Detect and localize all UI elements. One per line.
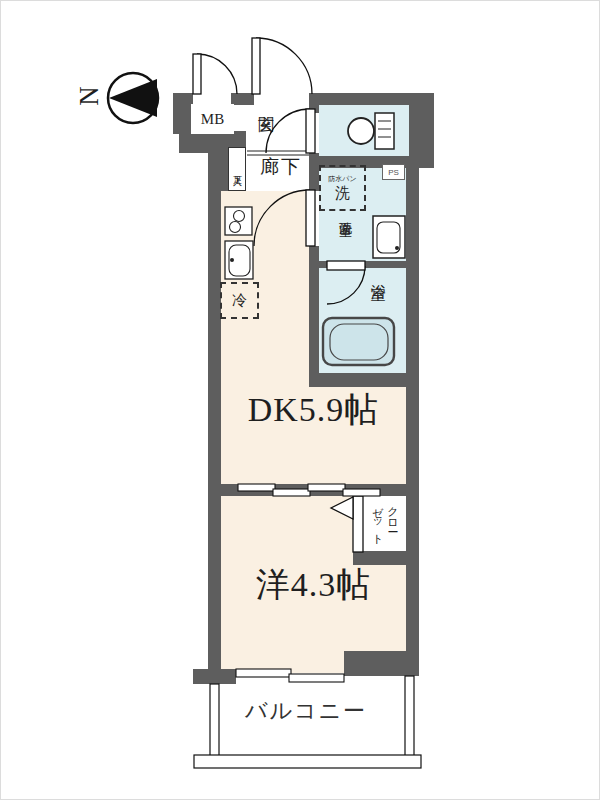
closet-label-right: クロー [385, 499, 400, 527]
wall-segment [344, 651, 418, 676]
wall-segment [409, 93, 434, 165]
western-room-text: 洋4.3帖 [256, 562, 372, 608]
bathroom-floor [319, 268, 406, 373]
north-letter: N [74, 86, 105, 106]
wall-segment [208, 151, 228, 191]
compass-icon [108, 73, 158, 123]
entrance-floor [246, 105, 309, 153]
wall-segment-room-divider [221, 484, 406, 496]
wall-segment [309, 246, 319, 387]
washing-machine-space: 防水パン 洗 [319, 165, 366, 211]
closet-label-left: ゼット [370, 499, 385, 540]
entrance-label: 玄関 [255, 102, 276, 106]
wall-segment [309, 105, 319, 113]
wall-segment [193, 669, 236, 684]
refrigerator-label: 冷 [232, 291, 247, 310]
hallway-text: 廊下 [260, 154, 302, 180]
dk-label: DK5.9帖 [221, 389, 406, 431]
wall-segment [319, 261, 418, 268]
washer-pan-label: 防水パン [328, 174, 356, 184]
shoe-cabinet: 下足入 [228, 147, 246, 191]
western-room-label: 洋4.3帖 [221, 564, 406, 606]
pipe-space: PS [382, 164, 405, 180]
wall-segment [173, 93, 193, 134]
wall-segment-right [406, 165, 419, 676]
entrance-door-arc [252, 38, 312, 94]
washroom-label: 洗面室 [336, 211, 354, 214]
dk-text: DK5.9帖 [248, 387, 380, 433]
meter-box-label: MB [201, 111, 224, 128]
north-label: N [73, 80, 105, 112]
mb-door-arc [193, 54, 237, 94]
bathroom-label: 浴室 [368, 272, 387, 276]
dk-floor-left [221, 191, 309, 484]
washer-label: 洗 [335, 184, 350, 203]
floor-plan: MB 下足入 PS 防水パン 洗 冷 N 玄関 廊下 洗面室 浴室 DK5.9帖… [0, 0, 600, 800]
pipe-space-label: PS [388, 168, 399, 177]
balcony-label: バルコニー [214, 697, 398, 725]
toilet-floor [319, 105, 409, 156]
meter-box: MB [191, 104, 234, 134]
balcony-text: バルコニー [245, 696, 367, 726]
refrigerator-space: 冷 [220, 282, 259, 319]
wall-segment-left [208, 191, 221, 673]
wall-segment [231, 93, 254, 105]
hallway-label: 廊下 [251, 154, 311, 180]
wall-segment [309, 373, 418, 387]
